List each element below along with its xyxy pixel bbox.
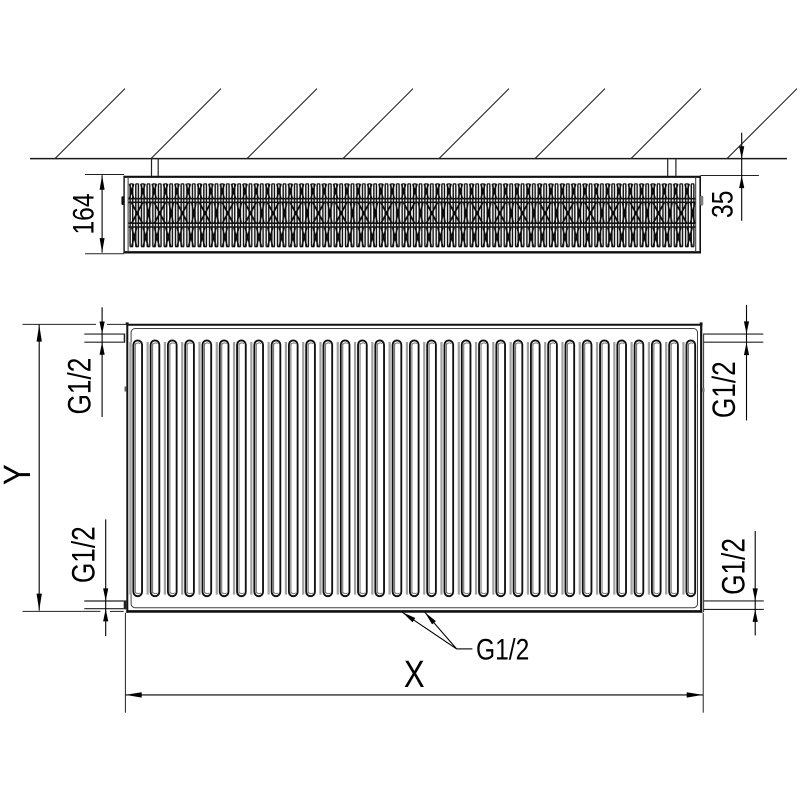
svg-text:G1/2: G1/2 [63, 358, 98, 415]
svg-text:G1/2: G1/2 [476, 632, 529, 666]
svg-text:G1/2: G1/2 [708, 361, 743, 418]
svg-text:X: X [404, 654, 425, 696]
svg-text:G1/2: G1/2 [67, 526, 102, 583]
svg-text:164: 164 [66, 193, 100, 234]
svg-text:G1/2: G1/2 [717, 538, 752, 595]
svg-text:35: 35 [705, 191, 739, 218]
svg-text:Y: Y [0, 464, 39, 485]
